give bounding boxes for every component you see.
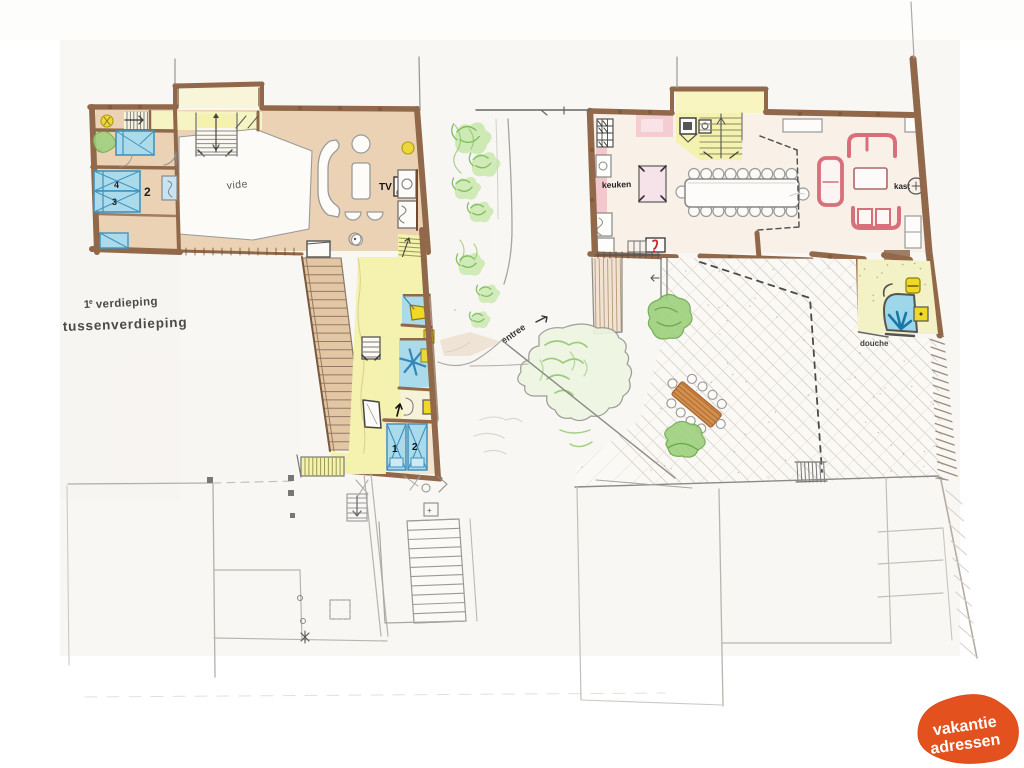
svg-text:e: e — [89, 299, 93, 306]
svg-text:2: 2 — [144, 185, 151, 199]
svg-text:TV: TV — [379, 182, 392, 193]
svg-text:4: 4 — [114, 180, 119, 190]
svg-text:vide: vide — [226, 178, 248, 192]
svg-text:3: 3 — [112, 197, 117, 207]
svg-text:2: 2 — [412, 442, 418, 453]
svg-text:+: + — [427, 506, 432, 515]
svg-text:keuken: keuken — [602, 179, 632, 190]
svg-text:1: 1 — [392, 444, 398, 455]
svg-text:douche: douche — [860, 339, 889, 348]
